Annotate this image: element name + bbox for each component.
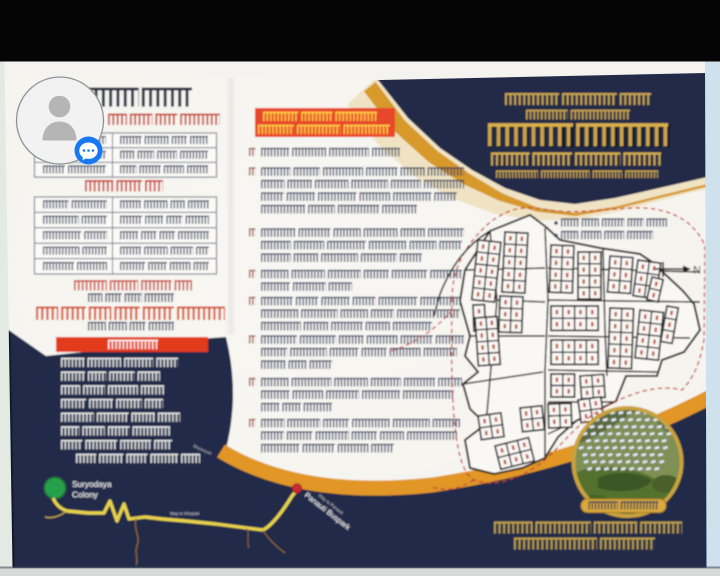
svg-text:Suryodaya: Suryodaya <box>72 479 112 489</box>
svg-text:N: N <box>693 265 701 277</box>
svg-text:Colony: Colony <box>72 490 99 500</box>
svg-text:Way to Khopasi: Way to Khopasi <box>170 511 199 516</box>
